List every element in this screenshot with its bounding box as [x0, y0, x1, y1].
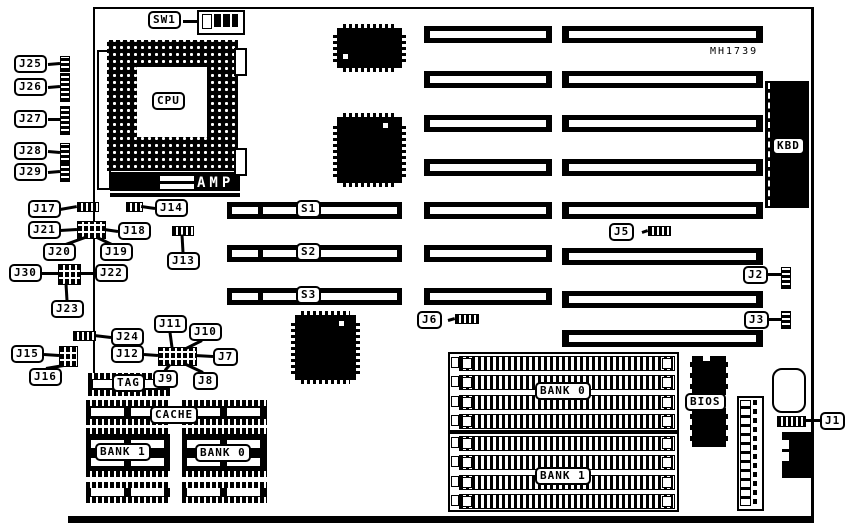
- slot-key: [232, 207, 258, 214]
- kbd-connector-dashed-line: [768, 83, 770, 206]
- callout-j5: J5: [609, 223, 634, 241]
- slot-key: [569, 253, 756, 260]
- jumper-block-j30: [58, 264, 81, 285]
- part-number: MH1739: [710, 46, 758, 57]
- motherboard-diagram: AMP MH1739 SW1J25J26J27J28J29J17J14J21J1…: [0, 0, 851, 527]
- qfp-chip-3: [295, 315, 356, 380]
- qfp-pin1-dot: [383, 123, 388, 128]
- power-connector-pins-left: [740, 400, 751, 506]
- bottom-chip-row-left: [86, 482, 170, 503]
- callout-j30: J30: [9, 264, 42, 282]
- callout-j14: J14: [155, 199, 188, 217]
- slot-key: [232, 250, 258, 257]
- simm-latch: [462, 416, 472, 427]
- callout-line: [94, 334, 111, 339]
- slot-key: [569, 207, 756, 214]
- qfp-pin1-dot: [343, 54, 348, 59]
- simm-latch: [462, 377, 472, 388]
- callout-j3: J3: [744, 311, 769, 329]
- slot-key: [430, 164, 546, 171]
- jumper-j5: [648, 226, 671, 236]
- connector-j25: [60, 56, 70, 72]
- simm-latch: [662, 477, 672, 488]
- amp-connector-slot-1: [160, 176, 194, 181]
- callout-j1: J1: [820, 412, 845, 430]
- callout-j29: J29: [14, 163, 47, 181]
- simm-socket-bank0-1: [459, 356, 675, 371]
- callout-j28: J28: [14, 142, 47, 160]
- cpu-socket-key-top: [234, 48, 247, 76]
- label-cache-bank1: BANK 1: [95, 443, 151, 461]
- simm-latch: [462, 438, 472, 449]
- callout-line: [48, 118, 60, 121]
- simm-latch: [662, 457, 672, 468]
- callout-line: [183, 20, 197, 23]
- connector-j2: [781, 267, 791, 289]
- slot-key: [430, 207, 546, 214]
- jumper-j17: [77, 202, 99, 212]
- chip-pins: [182, 428, 267, 434]
- label-cpu: CPU: [152, 92, 185, 110]
- cpu-socket-key-bottom: [234, 148, 247, 176]
- chip-body: [227, 408, 260, 416]
- callout-j8: J8: [193, 372, 218, 390]
- callout-j13: J13: [167, 252, 200, 270]
- chip-pins: [86, 497, 170, 503]
- callout-j10: J10: [189, 323, 222, 341]
- slot-key: [569, 120, 756, 127]
- connector-j28: [60, 143, 70, 164]
- qfp-chip-2: [337, 117, 402, 183]
- simm-latch: [662, 358, 672, 369]
- callout-j2: J2: [743, 266, 768, 284]
- chip-body: [131, 488, 164, 496]
- callout-j20: J20: [43, 243, 76, 261]
- callout-j9: J9: [153, 370, 178, 388]
- slot-key: [430, 293, 546, 300]
- qfp-chip-1: [337, 28, 402, 68]
- chip-body: [187, 488, 220, 496]
- label-cache-bank0: BANK 0: [195, 444, 251, 462]
- board-edge-left: [93, 7, 95, 374]
- dip-switch-pos-3: [223, 14, 230, 27]
- callout-line: [79, 272, 95, 275]
- slot-key: [430, 76, 546, 83]
- callout-j12: J12: [111, 345, 144, 363]
- jumper-j1: [777, 416, 806, 427]
- callout-s2: S2: [296, 243, 321, 261]
- connector-j27: [60, 106, 70, 135]
- dip-switch-pos-2: [214, 14, 221, 27]
- callout-j6: J6: [417, 311, 442, 329]
- jumper-block-j7-j12: [158, 347, 197, 366]
- callout-s1: S1: [296, 200, 321, 218]
- amp-connector-base: [110, 193, 240, 197]
- qfp-pins-bottom: [343, 68, 396, 72]
- dip-switch-pos-1: [202, 14, 212, 29]
- board-edge-top: [93, 7, 813, 9]
- din-connector-notch-2: [782, 452, 789, 461]
- expansion-slot-right-2: [562, 71, 763, 88]
- chip-body: [227, 488, 260, 496]
- chip-pins: [86, 428, 170, 434]
- slot-key: [430, 120, 546, 127]
- expansion-slot-left-5: [424, 202, 552, 219]
- qfp-pins-bottom: [343, 183, 396, 187]
- simm-standoff: [451, 415, 459, 426]
- callout-line: [48, 62, 60, 66]
- expansion-slot-right-6: [562, 248, 763, 265]
- expansion-slot-right-3: [562, 115, 763, 132]
- label-cache: CACHE: [150, 406, 198, 424]
- expansion-slot-left-3: [424, 115, 552, 132]
- connector-j29: [60, 163, 70, 182]
- simm-latch: [662, 377, 672, 388]
- expansion-slot-left-1: [424, 26, 552, 43]
- qfp-pins-right: [402, 123, 406, 177]
- expansion-slot-left-4: [424, 159, 552, 176]
- callout-j17: J17: [28, 200, 61, 218]
- callout-line: [65, 283, 69, 300]
- slot-key: [263, 207, 397, 214]
- callout-line: [44, 353, 59, 357]
- callout-line: [169, 332, 174, 347]
- simm-socket-bank0-4: [459, 414, 675, 429]
- chip-pins: [182, 471, 267, 477]
- callout-line: [60, 228, 77, 232]
- callout-j15: J15: [11, 345, 44, 363]
- chip-body: [91, 408, 124, 416]
- qfp-pins-bottom: [301, 380, 350, 384]
- label-kbd: KBD: [772, 137, 805, 155]
- callout-line: [804, 419, 820, 422]
- callout-sw1: SW1: [148, 11, 181, 29]
- qfp-pin1-dot: [339, 321, 344, 326]
- chip-pins: [86, 471, 170, 477]
- simm-standoff: [451, 476, 459, 487]
- expansion-slot-right-4: [562, 159, 763, 176]
- callout-j22: J22: [95, 264, 128, 282]
- chip-pins: [182, 497, 267, 503]
- callout-line: [48, 170, 60, 174]
- simm-latch: [462, 358, 472, 369]
- jumper-j6: [455, 314, 479, 324]
- simm-socket-bank1-1: [459, 436, 675, 451]
- label-tag: TAG: [112, 374, 145, 392]
- amp-connector-slot-2: [160, 184, 194, 189]
- simm-socket-bank1-4: [459, 494, 675, 509]
- qfp-pins-right: [356, 321, 360, 374]
- dip-switch-pos-4: [232, 14, 238, 27]
- din-connector-notch-1: [782, 440, 789, 449]
- callout-s3: S3: [296, 286, 321, 304]
- callout-j23: J23: [51, 300, 84, 318]
- expansion-slot-right-7: [562, 291, 763, 308]
- slot-key: [430, 250, 546, 257]
- jumper-j24: [73, 331, 96, 341]
- simm-latch: [462, 397, 472, 408]
- expansion-slot-left-7: [424, 288, 552, 305]
- callout-line: [42, 272, 58, 275]
- simm-latch: [662, 397, 672, 408]
- callout-j16: J16: [29, 368, 62, 386]
- simm-latch: [462, 457, 472, 468]
- simm-standoff: [451, 396, 459, 407]
- callout-line: [48, 150, 60, 154]
- slot-key: [569, 76, 756, 83]
- board-edge-bottom: [68, 516, 814, 523]
- callout-line: [181, 234, 185, 252]
- bottom-chip-row-right: [182, 482, 267, 503]
- callout-j21: J21: [28, 221, 61, 239]
- callout-j25: J25: [14, 55, 47, 73]
- simm-standoff: [451, 437, 459, 448]
- callout-line: [60, 205, 78, 211]
- callout-line: [48, 85, 60, 89]
- expansion-slot-left-2: [424, 71, 552, 88]
- simm-standoff: [451, 456, 459, 467]
- label-amp: AMP: [197, 175, 234, 191]
- slot-key: [232, 293, 258, 300]
- callout-line: [195, 354, 213, 358]
- power-connector-pins-right: [753, 400, 757, 504]
- slot-key: [430, 31, 546, 38]
- expansion-slot-right-8: [562, 330, 763, 347]
- chip-body: [91, 488, 124, 496]
- slot-key: [263, 250, 397, 257]
- chip-pins: [182, 400, 267, 406]
- simm-latch: [662, 416, 672, 427]
- simm-latch: [662, 438, 672, 449]
- callout-j27: J27: [14, 110, 47, 128]
- slot-key: [263, 293, 397, 300]
- callout-j24: J24: [111, 328, 144, 346]
- slot-key: [569, 164, 756, 171]
- connector-j26: [60, 73, 70, 102]
- connector-j3: [781, 311, 791, 329]
- battery-outline: [772, 368, 806, 413]
- callout-j18: J18: [118, 222, 151, 240]
- slot-key: [569, 296, 756, 303]
- callout-j11: J11: [154, 315, 187, 333]
- expansion-slot-left-6: [424, 245, 552, 262]
- expansion-slot-right-5: [562, 202, 763, 219]
- bios-chip-1: [690, 356, 728, 395]
- qfp-pins-right: [402, 34, 406, 62]
- callout-line: [767, 273, 781, 276]
- label-simm-bank1: BANK 1: [535, 467, 591, 485]
- simm-standoff: [451, 376, 459, 387]
- bios-chip-2: [690, 408, 728, 447]
- simm-latch: [462, 477, 472, 488]
- label-bios: BIOS: [685, 393, 726, 411]
- slot-key: [569, 335, 756, 342]
- slot-key: [569, 31, 756, 38]
- simm-standoff: [451, 495, 459, 506]
- callout-j26: J26: [14, 78, 47, 96]
- bios-chip-notch: [703, 356, 710, 361]
- callout-line: [769, 318, 781, 321]
- simm-standoff: [451, 357, 459, 368]
- callout-j19: J19: [100, 243, 133, 261]
- callout-j7: J7: [213, 348, 238, 366]
- callout-line: [144, 353, 158, 357]
- simm-latch: [662, 496, 672, 507]
- simm-latch: [462, 496, 472, 507]
- label-simm-bank0: BANK 0: [535, 382, 591, 400]
- expansion-slot-right-1: [562, 26, 763, 43]
